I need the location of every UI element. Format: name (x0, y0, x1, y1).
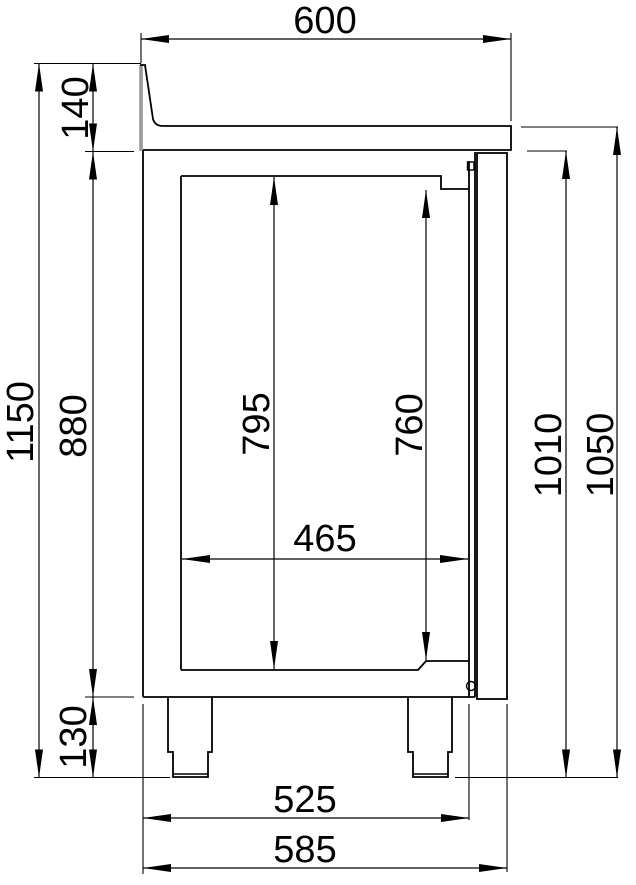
dim-label-760: 760 (389, 393, 431, 456)
dimension-height-to-door-top-1010: 1010 (528, 151, 570, 778)
dimension-leg-height-130: 130 (53, 697, 95, 778)
dimension-overall-depth-585: 585 (143, 829, 507, 871)
technical-drawing-page: 600 140 880 130 1150 795 760 465 (0, 0, 636, 885)
cabinet-outline (140, 65, 511, 777)
leg-left (168, 697, 212, 777)
dim-label-465: 465 (293, 518, 356, 560)
dim-label-600: 600 (293, 0, 356, 42)
drawing-canvas: 600 140 880 130 1150 795 760 465 (0, 0, 636, 885)
dimension-body-depth-525: 525 (143, 779, 469, 821)
worktop-profile (140, 65, 511, 150)
dim-label-130: 130 (53, 705, 95, 768)
dimension-splashback-height-140: 140 (55, 64, 97, 152)
dim-label-880: 880 (53, 394, 95, 457)
interior-floor (181, 661, 469, 670)
dim-label-585: 585 (273, 829, 336, 871)
dim-label-1050: 1050 (580, 413, 622, 498)
door-panel (477, 153, 507, 699)
interior-ceiling (181, 176, 469, 189)
dimension-height-to-worktop-1050: 1050 (580, 127, 622, 778)
leg-right (408, 697, 452, 777)
dimension-interior-depth-465: 465 (182, 518, 468, 560)
dimension-interior-height-795: 795 (236, 177, 278, 669)
dimension-total-height-1150: 1150 (0, 64, 42, 778)
dim-label-795: 795 (236, 392, 278, 455)
dim-label-140: 140 (55, 76, 97, 139)
dimension-worktop-depth-600: 600 (141, 0, 511, 42)
dim-label-525: 525 (273, 779, 336, 821)
dimension-body-height-880: 880 (53, 152, 95, 698)
dim-label-1010: 1010 (528, 413, 570, 498)
dim-label-1150: 1150 (0, 381, 42, 463)
dimension-door-opening-height-760: 760 (389, 190, 431, 660)
